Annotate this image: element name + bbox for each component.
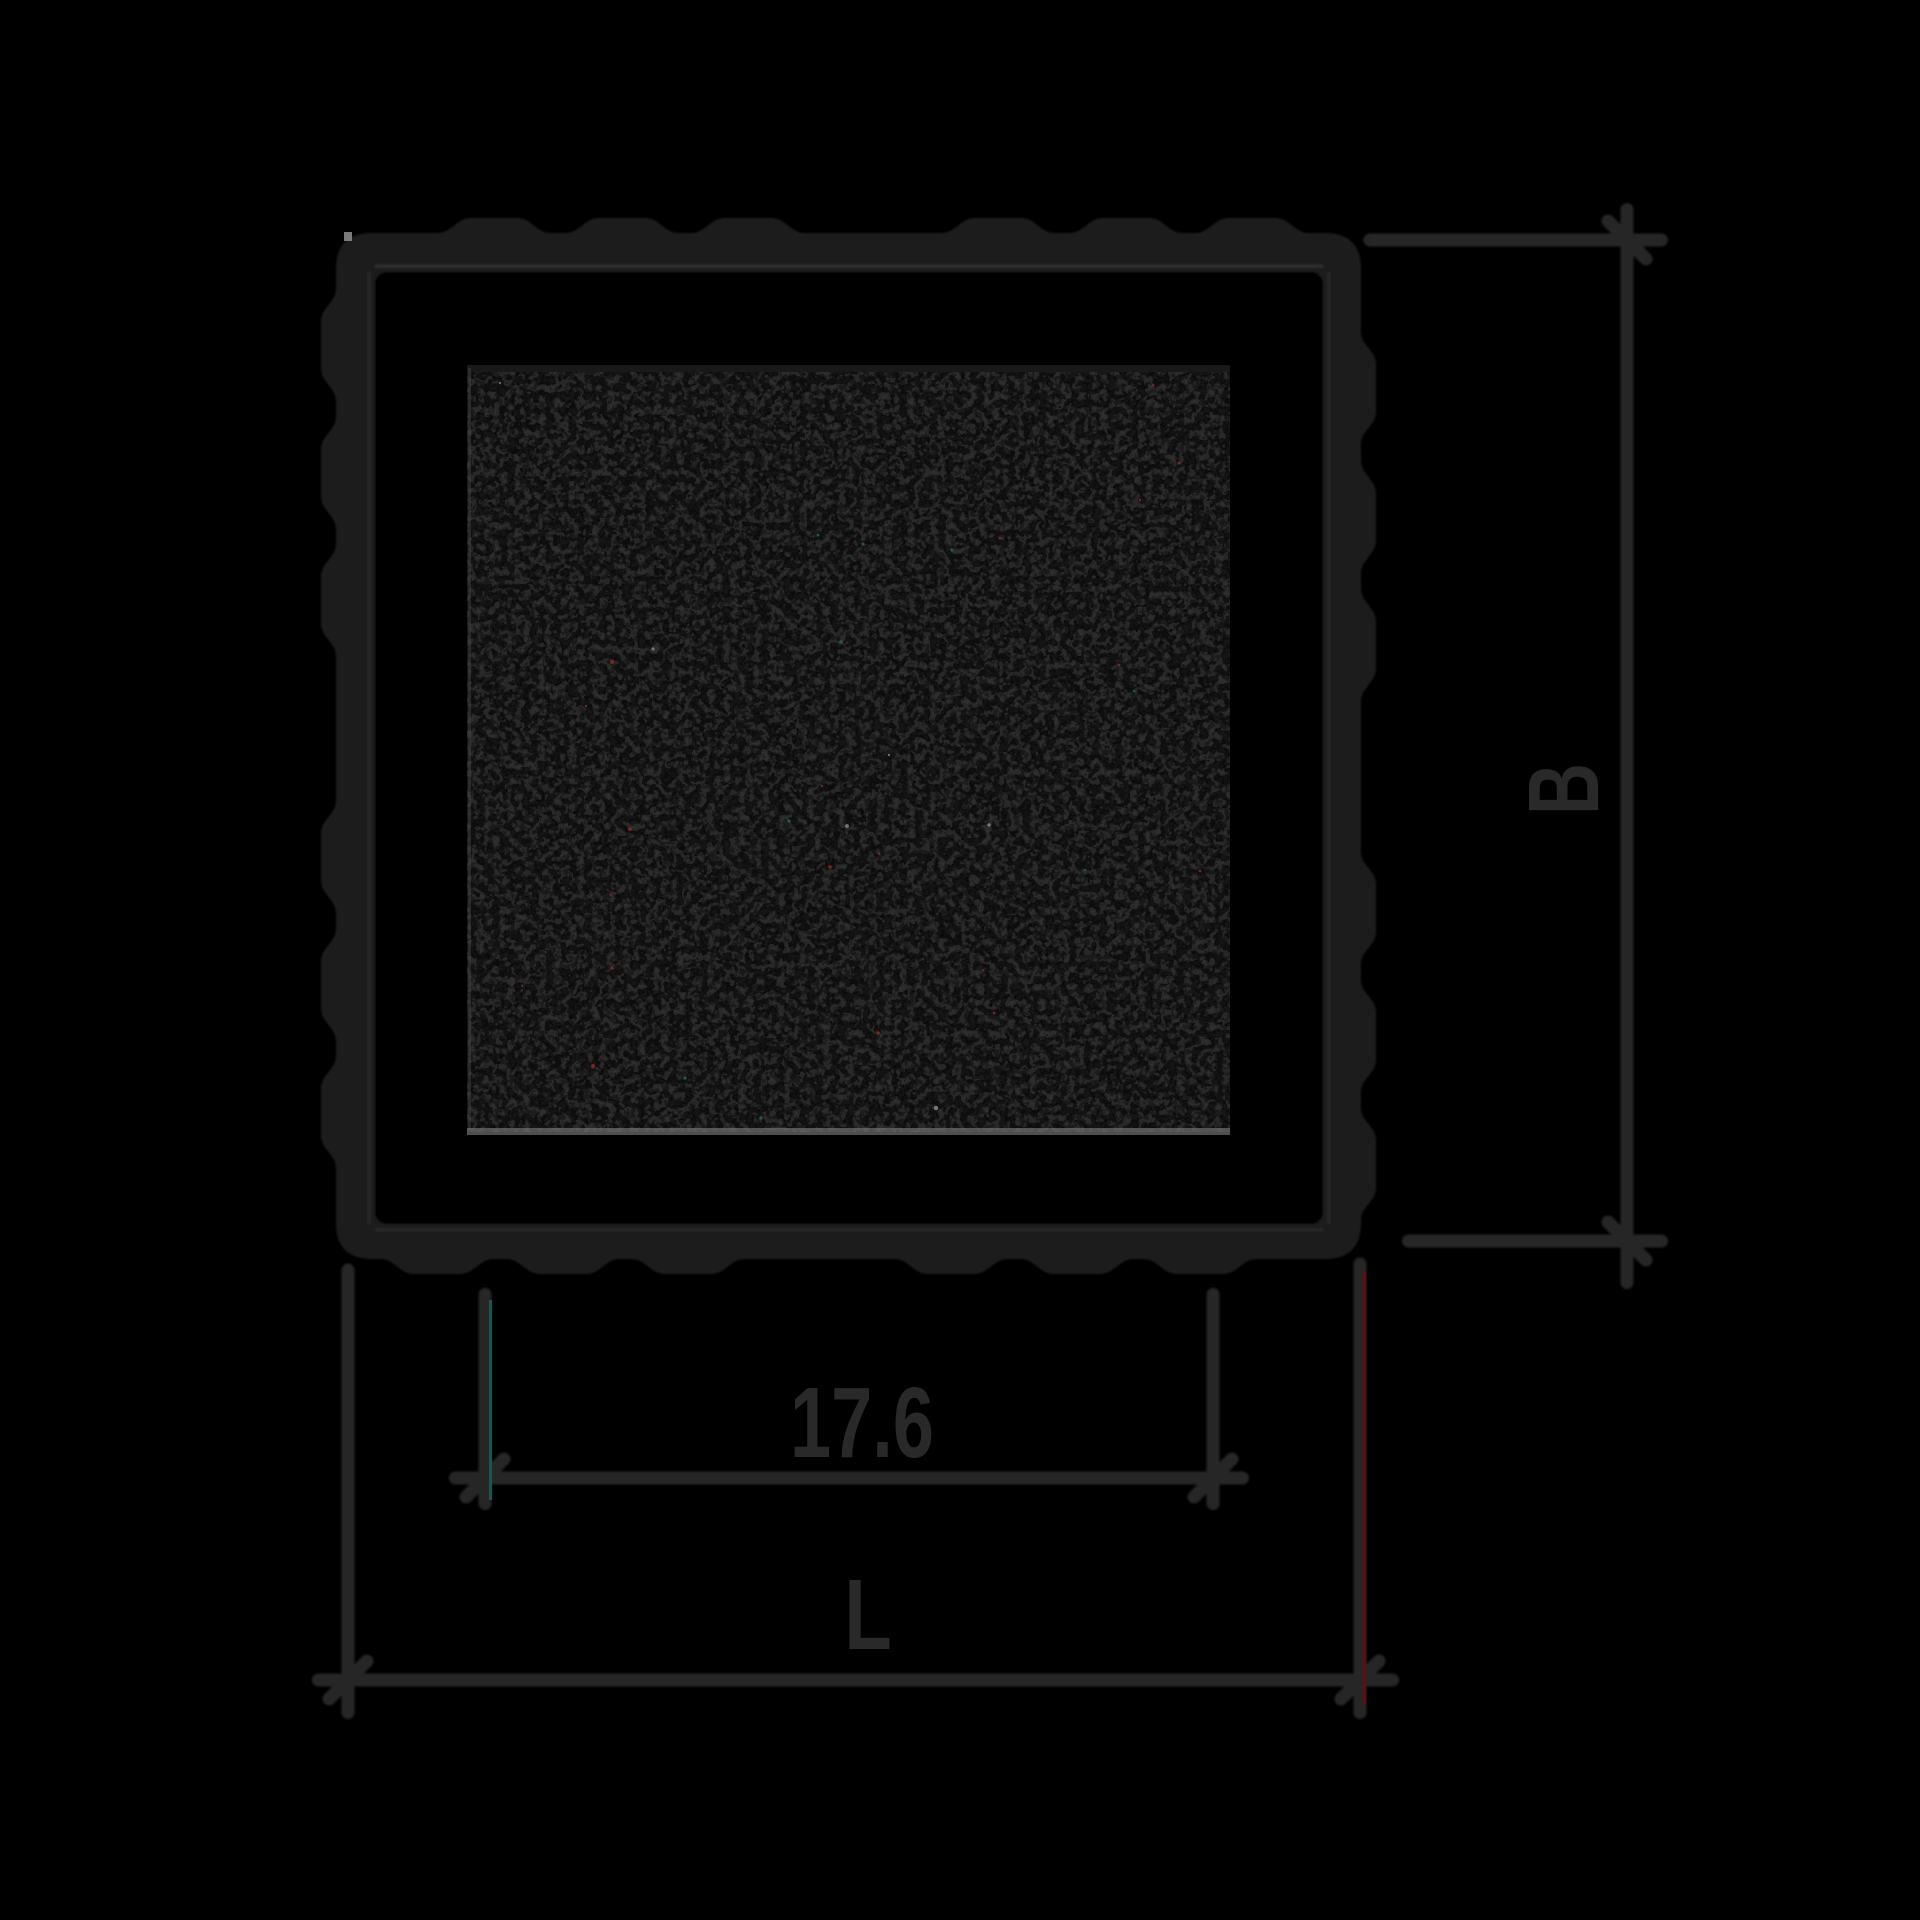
svg-text:B: B — [1508, 763, 1619, 815]
svg-text:L: L — [844, 1560, 892, 1672]
svg-text:17.6: 17.6 — [790, 1366, 934, 1479]
